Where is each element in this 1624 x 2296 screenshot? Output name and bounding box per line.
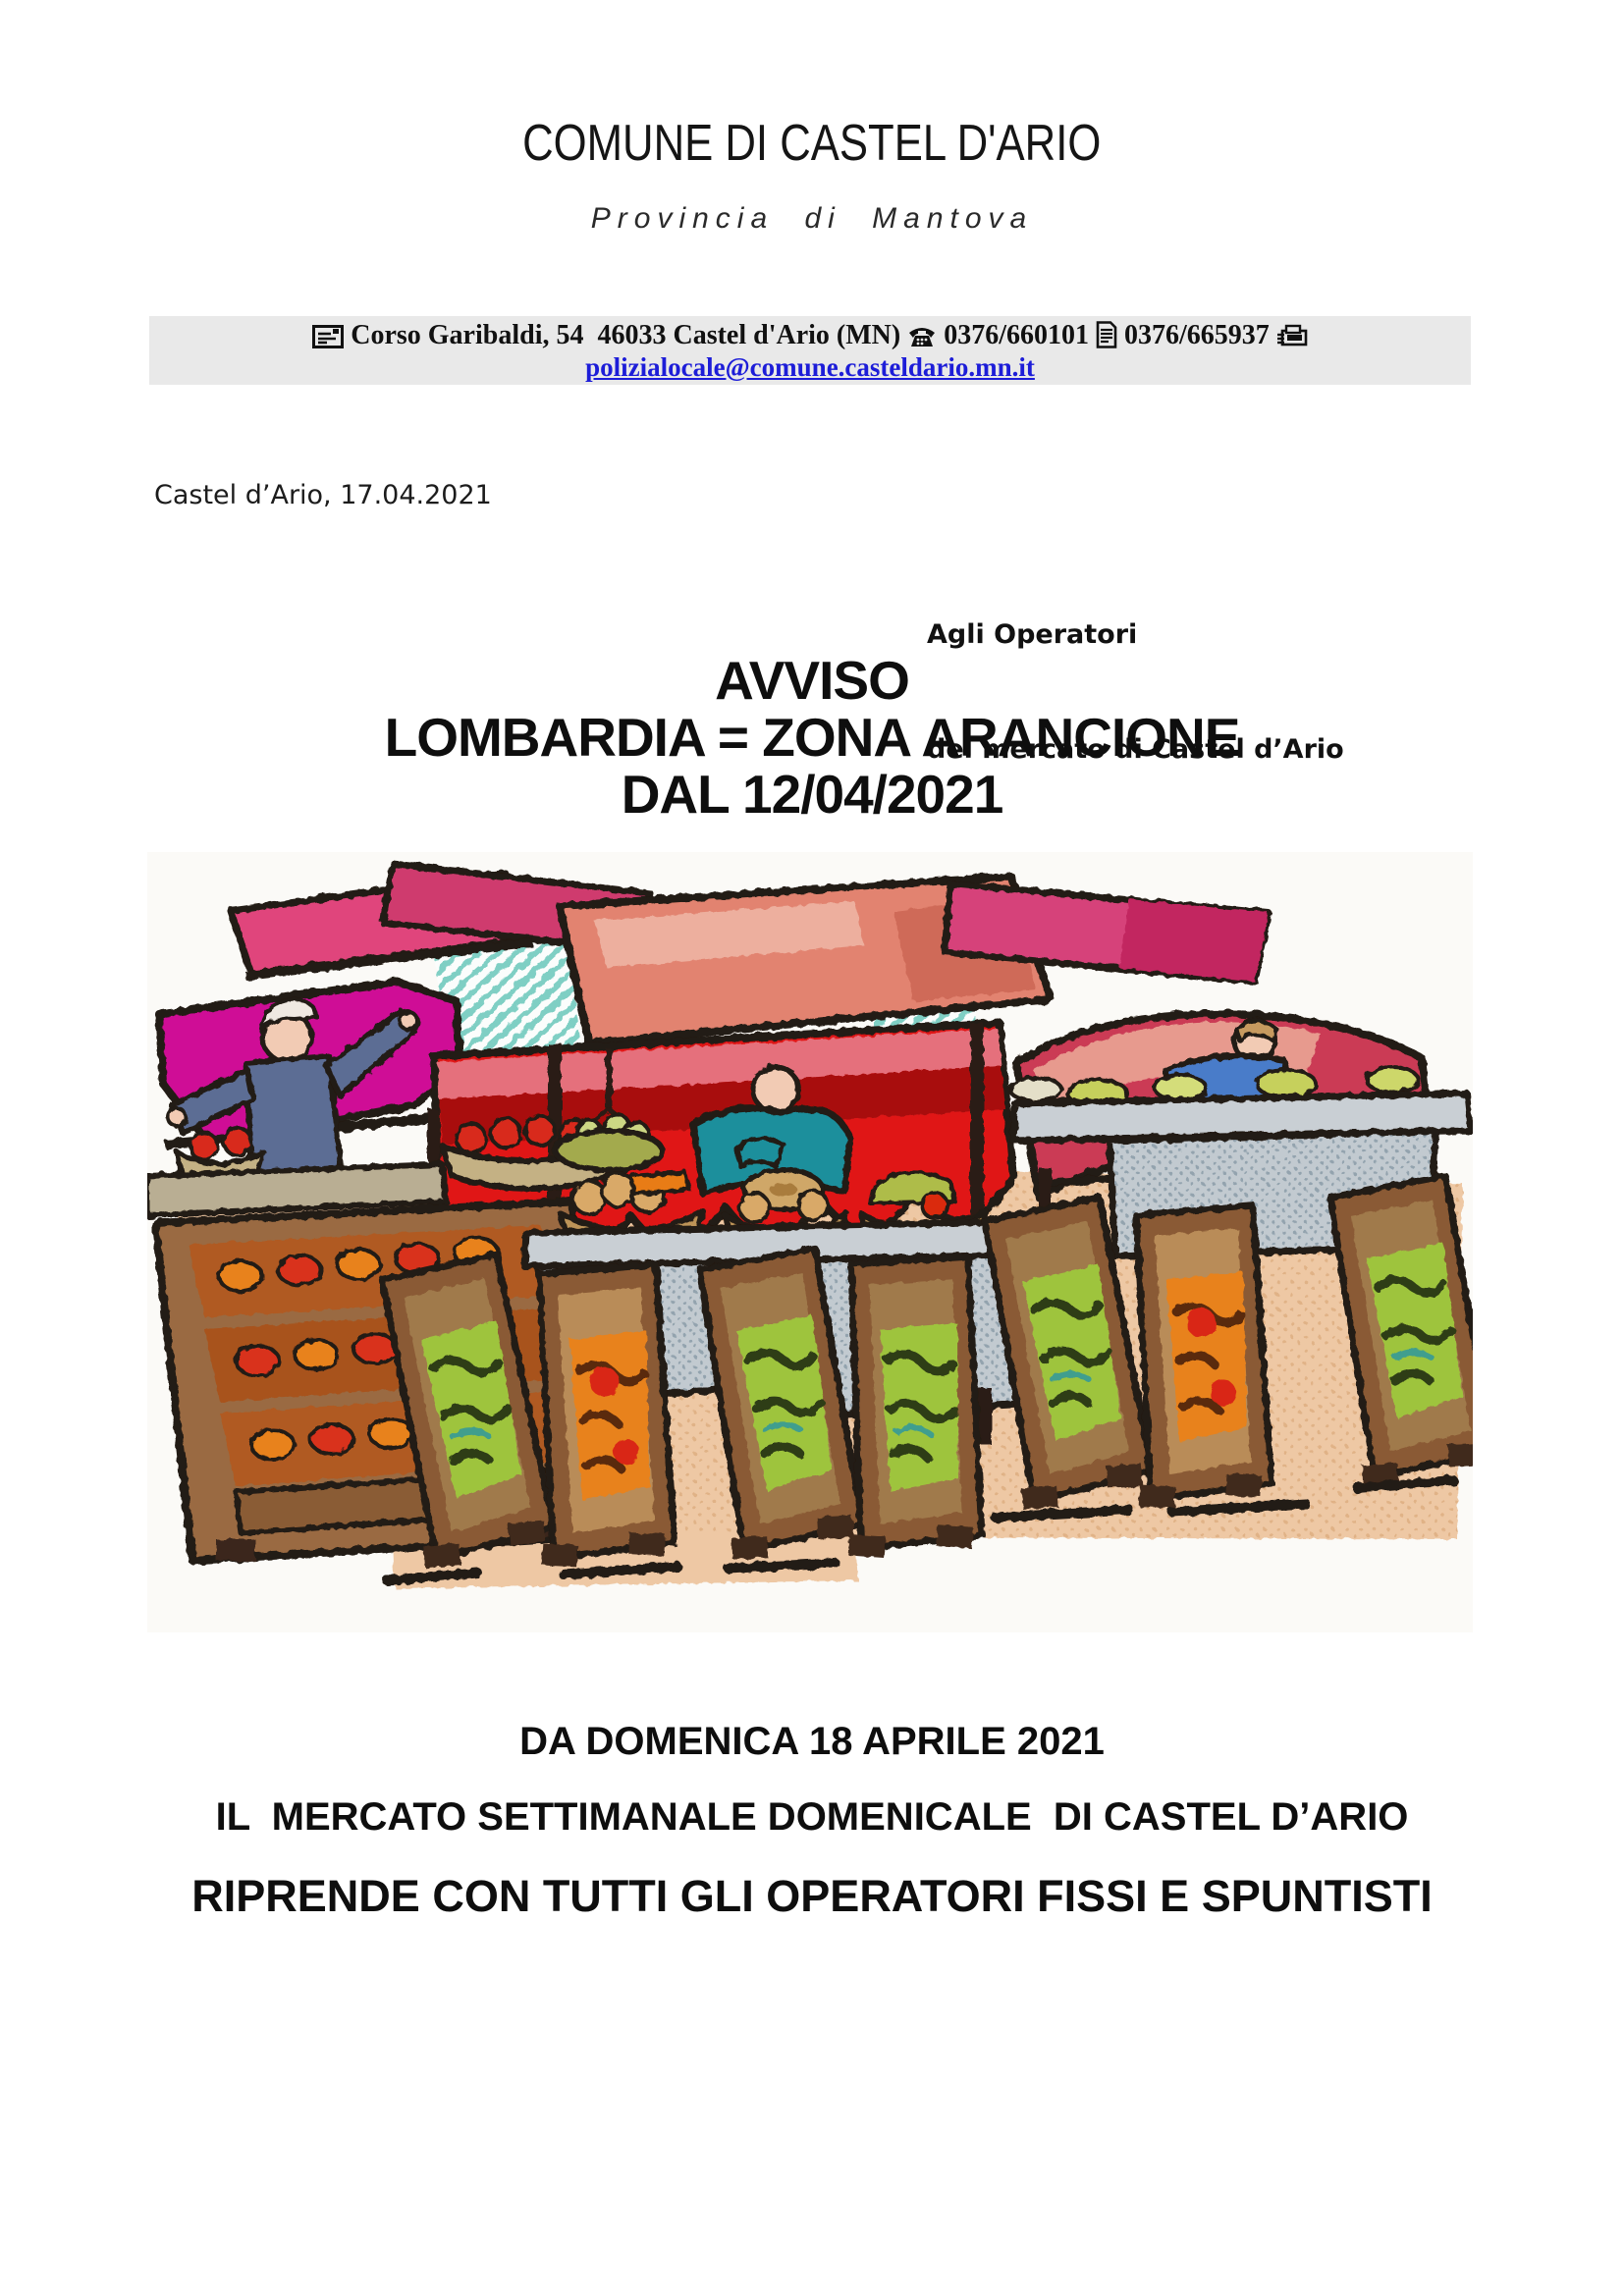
document-page: COMUNE DI CASTEL D'ARIO Provincia di Man… [0, 0, 1624, 2296]
notice-line3: DAL 12/04/2021 [0, 766, 1624, 823]
notice-line1: AVVISO [0, 652, 1624, 709]
page-subtitle: Provincia di Mantova [591, 202, 1033, 236]
phone-number: 0376/660101 [944, 320, 1089, 350]
footer-line1: DA DOMENICA 18 APRILE 2021 [0, 1720, 1624, 1764]
page-title: COMUNE DI CASTEL D'ARIO [522, 114, 1101, 173]
address-text: Corso Garibaldi, 54 46033 Castel d'Ario … [351, 320, 900, 350]
document-icon [1096, 321, 1117, 348]
fax-number: 0376/665937 [1124, 320, 1270, 350]
envelope-icon [312, 325, 344, 348]
notice-line2: LOMBARDIA = ZONA ARANCIONE [0, 709, 1624, 766]
email-link[interactable]: polizialocale@comune.casteldario.mn.it [585, 352, 1035, 382]
dateline: Castel d’Ario, 17.04.2021 [154, 480, 492, 510]
footer-line3: RIPRENDE CON TUTTI GLI OPERATORI FISSI E… [0, 1871, 1624, 1922]
footer-line2: IL MERCATO SETTIMANALE DOMENICALE DI CAS… [0, 1795, 1624, 1840]
notice-heading: AVVISO LOMBARDIA = ZONA ARANCIONE DAL 12… [0, 652, 1624, 823]
market-illustration [147, 852, 1473, 1632]
address-line: Corso Garibaldi, 54 46033 Castel d'Ario … [149, 319, 1471, 352]
fax-icon [1276, 323, 1308, 348]
address-banner: Corso Garibaldi, 54 46033 Castel d'Ario … [149, 316, 1471, 385]
phone-icon [907, 323, 937, 348]
letterhead: COMUNE DI CASTEL D'ARIO [0, 114, 1624, 173]
recipient-line1: Agli Operatori [927, 615, 1344, 654]
email-row: polizialocale@comune.casteldario.mn.it [149, 352, 1471, 387]
letterhead-subtitle-wrap: Provincia di Mantova [0, 202, 1624, 236]
